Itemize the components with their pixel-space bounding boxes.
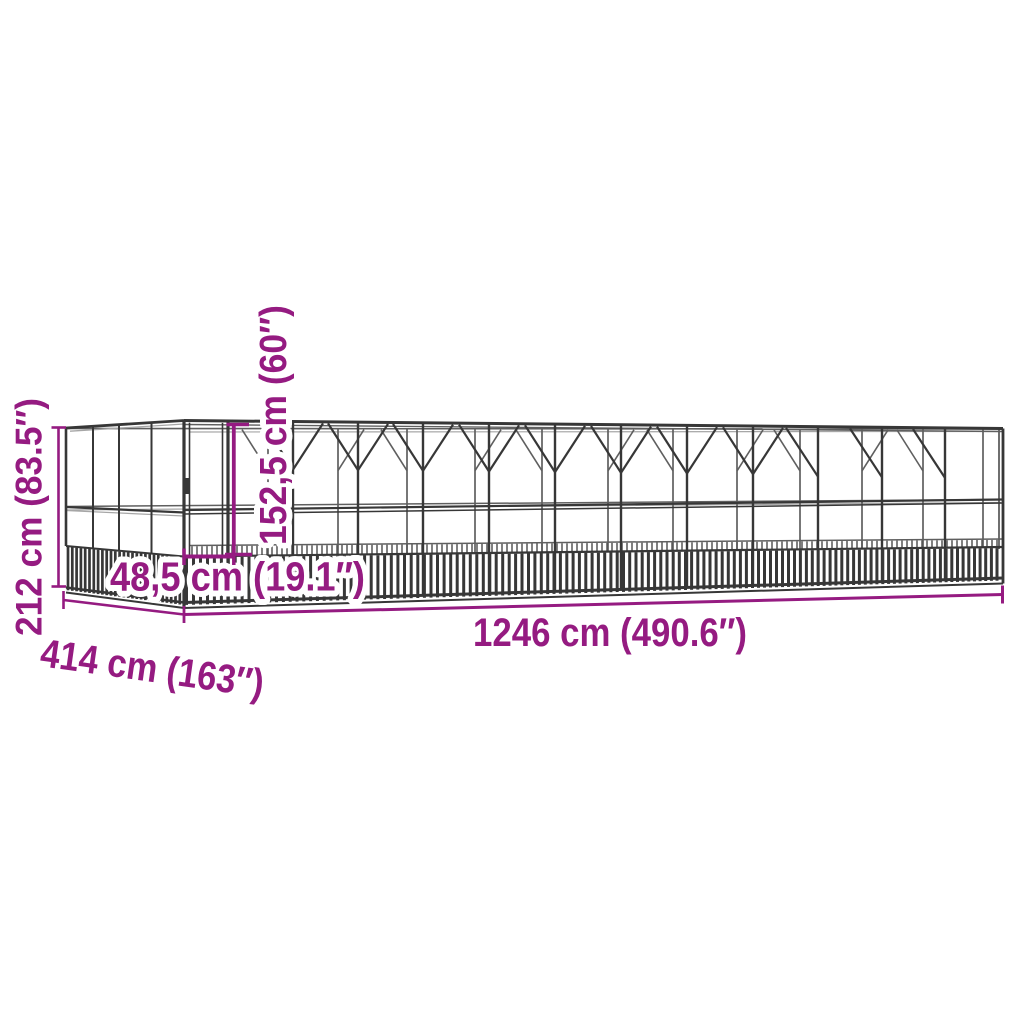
svg-text:1246 cm (490.6″): 1246 cm (490.6″) (473, 611, 747, 655)
svg-text:48,5 cm (19.1″): 48,5 cm (19.1″) (110, 554, 365, 600)
svg-text:212 cm (83.5″): 212 cm (83.5″) (9, 398, 50, 636)
svg-text:152,5 cm (60″): 152,5 cm (60″) (253, 305, 295, 545)
